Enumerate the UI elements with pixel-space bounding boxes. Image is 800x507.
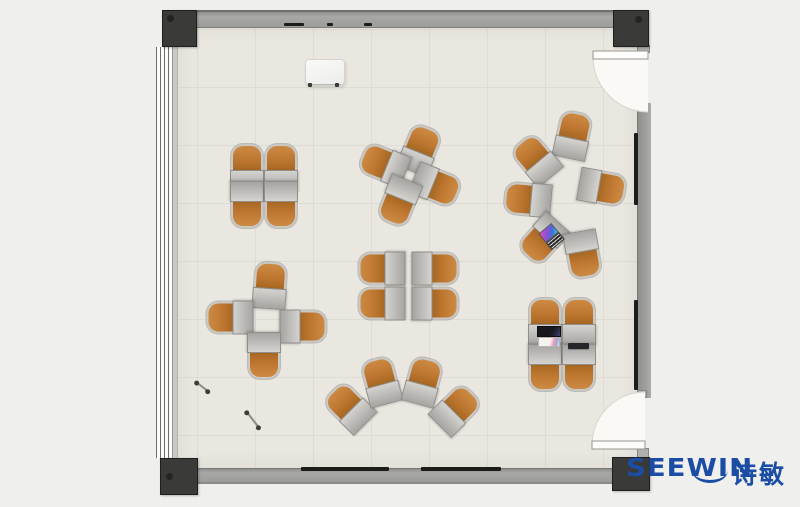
brand-logo-chinese: 诗敏	[732, 455, 786, 491]
chair-seat	[565, 363, 593, 389]
desk-chair-unit	[412, 287, 459, 321]
laptop-dark	[537, 326, 561, 348]
desk-top	[562, 324, 596, 345]
chair-seat	[267, 200, 295, 226]
chair-seat	[531, 363, 559, 389]
laptop-screen	[537, 326, 561, 337]
desk-top	[385, 252, 406, 286]
laptop-keyboard	[538, 337, 560, 347]
desk-top	[412, 252, 433, 286]
floor-plan-canvas: SEEWIN 诗敏	[0, 0, 800, 507]
desk-chair-unit	[251, 261, 288, 310]
desk-chair-unit	[207, 301, 254, 335]
chair-seat	[209, 304, 235, 332]
chair-seat	[233, 146, 261, 172]
desk-chair-unit	[280, 310, 327, 344]
desk-top	[230, 181, 264, 202]
desk-chair-unit	[247, 332, 281, 379]
pointer-stick	[246, 412, 260, 429]
furniture-layer	[0, 0, 800, 507]
desk-top	[247, 332, 281, 353]
desk-chair-unit	[562, 228, 604, 280]
whiteboard-foot	[335, 83, 339, 87]
chair-seat	[361, 255, 387, 283]
desk-chair-unit	[551, 109, 594, 162]
desk-chair-unit	[359, 252, 406, 286]
desk-top	[385, 287, 406, 321]
desk-chair-unit	[562, 298, 596, 345]
desk-chair-unit	[412, 252, 459, 286]
desk-chair-unit	[528, 344, 562, 391]
desk-chair-unit	[576, 167, 628, 209]
chair-seat	[361, 290, 387, 318]
desk-top	[251, 287, 286, 310]
chair-seat	[299, 313, 325, 341]
whiteboard-panel	[305, 59, 345, 86]
chair-seat	[531, 300, 559, 326]
tablet	[568, 343, 589, 349]
desk-top	[233, 301, 254, 335]
tablet-device	[568, 343, 589, 349]
whiteboard	[305, 59, 345, 86]
chair-seat	[431, 255, 457, 283]
desk-top	[280, 310, 301, 344]
desk-top	[264, 181, 298, 202]
chair-seat	[431, 290, 457, 318]
desk-chair-unit	[400, 354, 445, 408]
desk-chair-unit	[359, 287, 406, 321]
chair-seat	[565, 300, 593, 326]
desk-chair-unit	[562, 344, 596, 391]
whiteboard-foot	[308, 83, 312, 87]
desk-chair-unit	[264, 181, 298, 228]
desk-chair-unit	[230, 181, 264, 228]
desk-top	[412, 287, 433, 321]
brand-logo: SEEWIN 诗敏	[626, 452, 796, 492]
laptop-body	[537, 326, 561, 348]
chair-seat	[233, 200, 261, 226]
chair-seat	[250, 351, 278, 377]
chair-seat	[267, 146, 295, 172]
pointer-stick	[195, 382, 208, 393]
